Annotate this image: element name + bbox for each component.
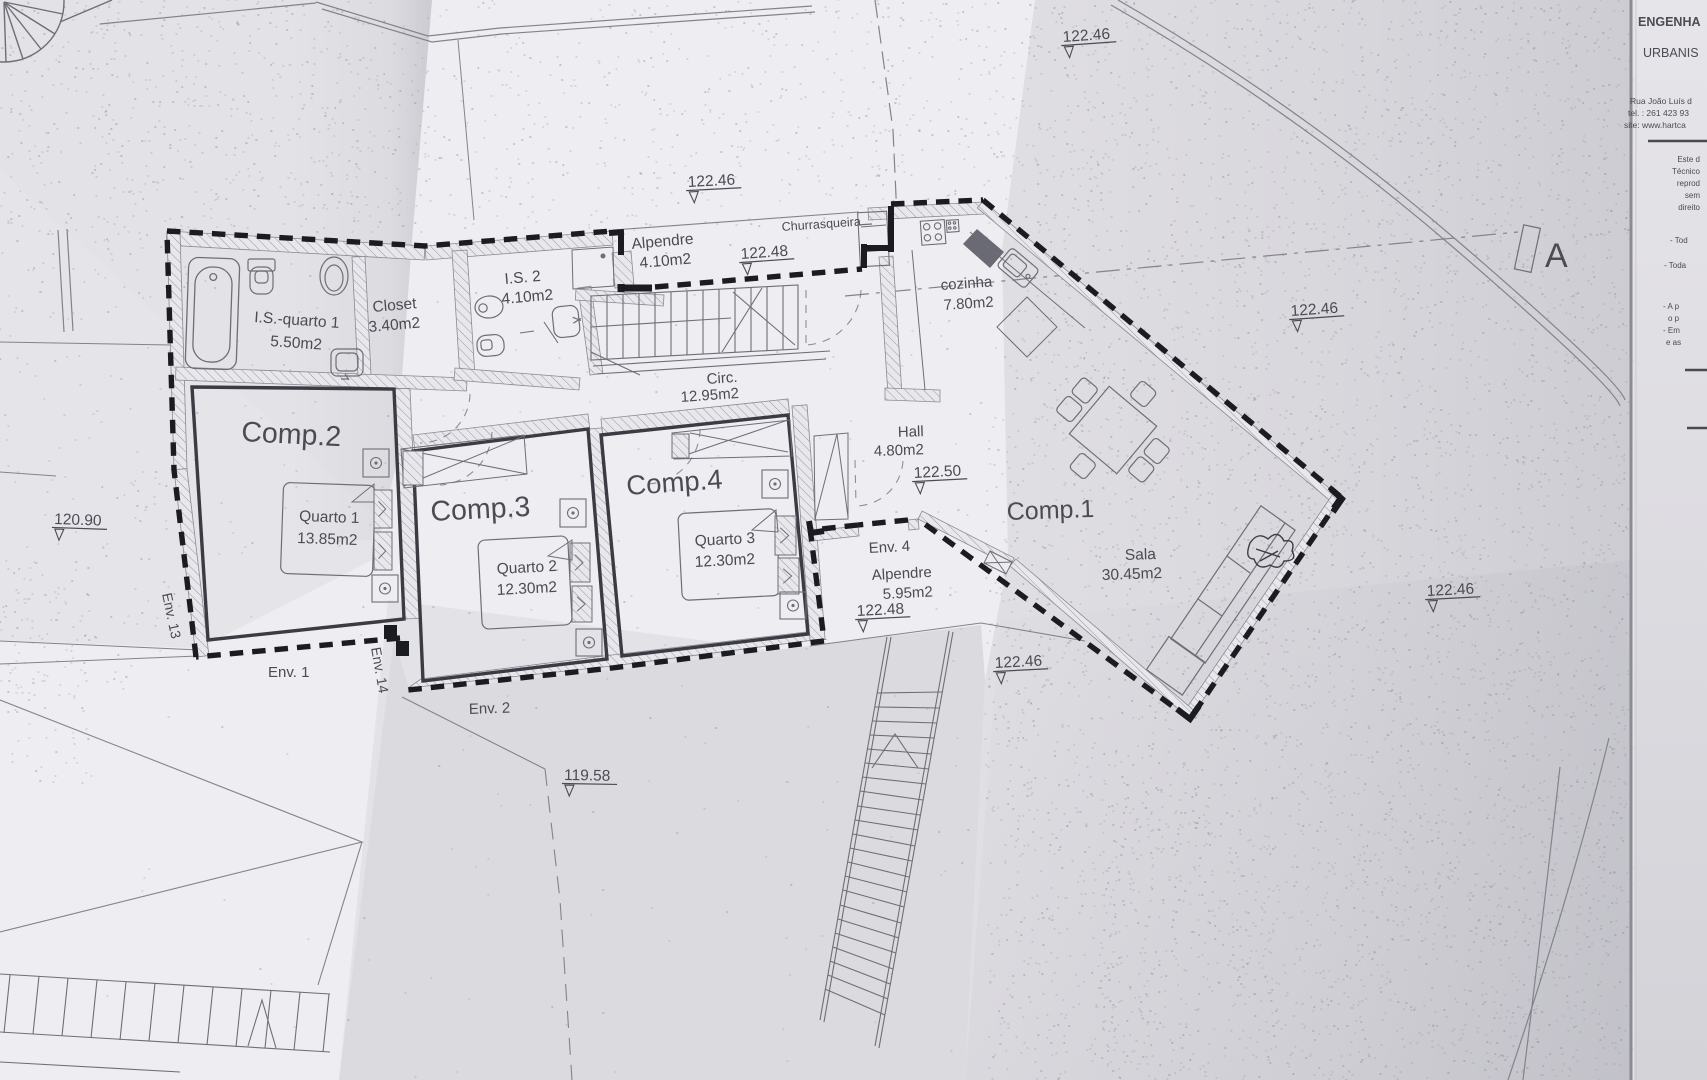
- svg-text:Sala: Sala: [1125, 546, 1157, 564]
- svg-text:5.50m2: 5.50m2: [270, 333, 323, 354]
- svg-text:o p: o p: [1668, 314, 1680, 323]
- svg-text:Env. 1: Env. 1: [268, 664, 309, 681]
- svg-text:12.30m2: 12.30m2: [694, 551, 755, 571]
- svg-text:reprod: reprod: [1677, 179, 1700, 188]
- svg-text:Quarto 2: Quarto 2: [496, 558, 557, 578]
- svg-text:Quarto 1: Quarto 1: [299, 508, 360, 527]
- svg-text:30.45m2: 30.45m2: [1102, 565, 1163, 584]
- svg-text:Comp.2: Comp.2: [241, 416, 342, 453]
- svg-text:119.58: 119.58: [564, 767, 611, 785]
- svg-text:- A p: - A p: [1663, 302, 1680, 311]
- svg-text:Comp.3: Comp.3: [430, 491, 531, 528]
- svg-text:site: www.hartca: site: www.hartca: [1624, 120, 1686, 130]
- svg-text:e as: e as: [1666, 338, 1681, 347]
- svg-text:Env. 4: Env. 4: [868, 538, 910, 557]
- svg-text:Env. 2: Env. 2: [469, 700, 511, 718]
- svg-text:I.S. 2: I.S. 2: [504, 268, 542, 288]
- svg-text:sem: sem: [1685, 191, 1700, 200]
- svg-text:tel. : 261 423 93: tel. : 261 423 93: [1628, 108, 1689, 118]
- svg-text:Alpendre: Alpendre: [871, 564, 932, 584]
- svg-text:- Toda: - Toda: [1664, 261, 1687, 270]
- svg-text:12.30m2: 12.30m2: [496, 579, 557, 599]
- svg-text:Hall: Hall: [898, 423, 924, 441]
- svg-text:- Tod: - Tod: [1670, 236, 1688, 245]
- svg-text:Quarto 3: Quarto 3: [694, 530, 755, 550]
- svg-text:URBANIS: URBANIS: [1643, 46, 1699, 60]
- svg-text:ENGENHA: ENGENHA: [1638, 15, 1701, 29]
- svg-text:A: A: [1545, 237, 1568, 275]
- svg-text:Comp.1: Comp.1: [1006, 495, 1094, 526]
- svg-text:Rua João Luís d: Rua João Luís d: [1630, 96, 1692, 106]
- svg-text:Este d: Este d: [1677, 155, 1700, 164]
- svg-text:7.80m2: 7.80m2: [943, 294, 994, 314]
- svg-text:120.90: 120.90: [54, 511, 102, 530]
- svg-text:direito: direito: [1678, 203, 1700, 212]
- svg-text:- Em: - Em: [1663, 326, 1680, 335]
- svg-text:4.80m2: 4.80m2: [874, 441, 925, 460]
- svg-text:Técnico: Técnico: [1672, 167, 1701, 176]
- svg-text:5.95m2: 5.95m2: [882, 583, 933, 603]
- svg-text:13.85m2: 13.85m2: [297, 530, 358, 549]
